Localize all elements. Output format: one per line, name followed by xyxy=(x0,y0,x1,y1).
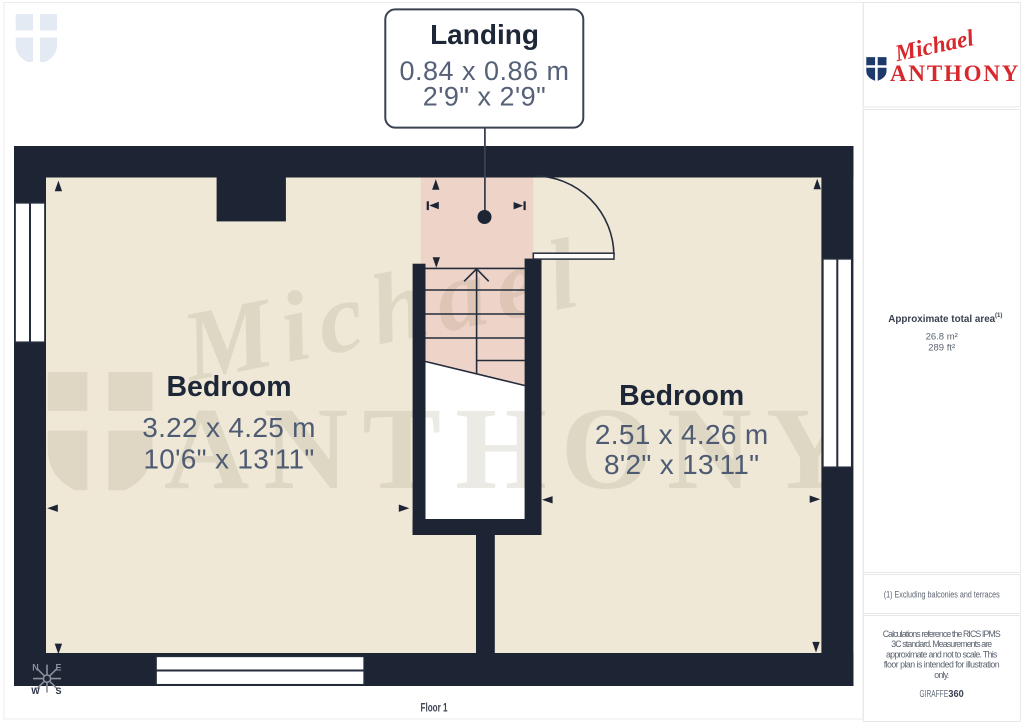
svg-text:8'2" x 13'11": 8'2" x 13'11" xyxy=(604,449,759,480)
svg-text:289 ft²: 289 ft² xyxy=(928,343,955,354)
svg-text:10'6" x 13'11": 10'6" x 13'11" xyxy=(143,444,314,475)
svg-text:Approximate total area: Approximate total area xyxy=(888,314,995,325)
svg-text:Landing: Landing xyxy=(430,19,539,50)
svg-text:ANTHONY: ANTHONY xyxy=(890,61,1020,86)
svg-text:Bedroom: Bedroom xyxy=(166,371,291,403)
svg-text:Bedroom: Bedroom xyxy=(619,380,744,412)
svg-text:2.51 x 4.26 m: 2.51 x 4.26 m xyxy=(595,419,769,450)
svg-text:S: S xyxy=(55,686,61,696)
svg-text:only.: only. xyxy=(934,670,949,680)
svg-text:(1) Excluding balconies and te: (1) Excluding balconies and terraces xyxy=(884,590,1000,600)
svg-text:3C standard. Measurements are: 3C standard. Measurements are xyxy=(891,639,992,649)
svg-text:26.8 m²: 26.8 m² xyxy=(926,331,958,342)
svg-text:3.22 x 4.25 m: 3.22 x 4.25 m xyxy=(142,412,316,443)
svg-text:360: 360 xyxy=(948,689,964,700)
svg-text:approximate and not to scale.: approximate and not to scale. This xyxy=(886,649,998,659)
svg-text:GIRAFFE: GIRAFFE xyxy=(920,689,949,700)
svg-text:floor plan is intended for ill: floor plan is intended for illustration xyxy=(884,660,1000,670)
svg-text:(1): (1) xyxy=(995,313,1002,319)
svg-text:2'9" x 2'9": 2'9" x 2'9" xyxy=(423,82,547,112)
svg-text:Floor 1: Floor 1 xyxy=(421,700,448,714)
svg-text:N: N xyxy=(32,662,39,672)
svg-text:E: E xyxy=(55,662,61,672)
svg-text:W: W xyxy=(31,686,40,696)
svg-text:Calculations reference the RIC: Calculations reference the RICS IPMS xyxy=(883,629,1001,639)
